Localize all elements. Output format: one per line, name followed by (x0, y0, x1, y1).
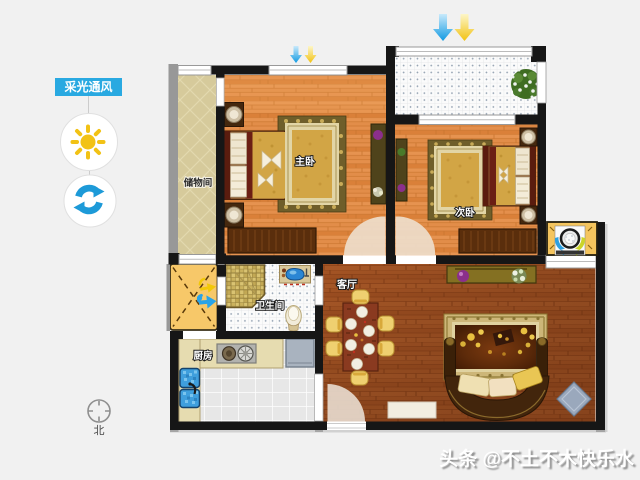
svg-text:采光通风: 采光通风 (63, 79, 112, 94)
svg-text:次卧: 次卧 (455, 206, 475, 219)
svg-text:储物间: 储物间 (184, 177, 213, 189)
svg-text:厨房: 厨房 (193, 350, 212, 362)
svg-text:头条 @不土不木快乐水: 头条 @不土不木快乐水 (439, 447, 635, 470)
svg-text:主卧: 主卧 (295, 155, 315, 168)
svg-text:客厅: 客厅 (336, 278, 357, 291)
svg-text:北: 北 (94, 424, 105, 437)
svg-text:卫生间: 卫生间 (256, 300, 285, 312)
